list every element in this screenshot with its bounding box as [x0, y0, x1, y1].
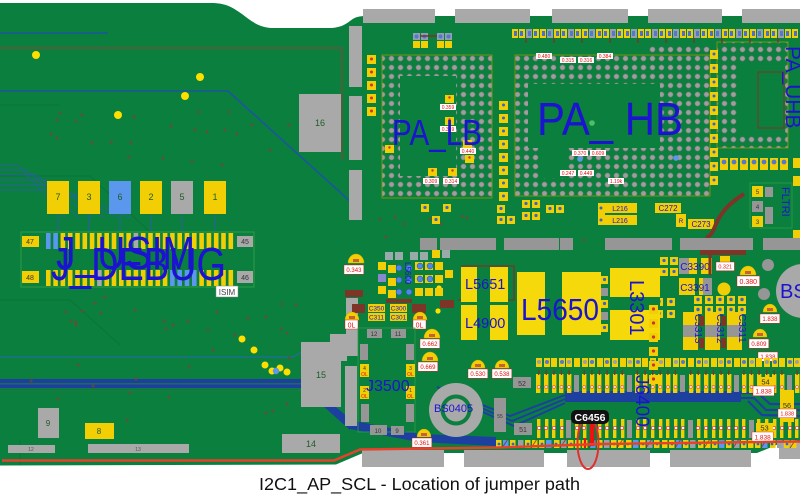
svg-text:L216: L216 [612, 206, 628, 213]
svg-text:10: 10 [375, 429, 382, 435]
svg-text:1: 1 [212, 192, 217, 202]
svg-text:0.370: 0.370 [574, 151, 587, 157]
svg-text:8: 8 [97, 427, 102, 436]
svg-text:J6400: J6400 [631, 375, 652, 427]
svg-text:FLTRI: FLTRI [779, 187, 791, 217]
svg-text:L5651: L5651 [465, 277, 505, 293]
svg-text:53: 53 [760, 424, 768, 433]
svg-text:0.384: 0.384 [599, 54, 612, 60]
svg-text:16: 16 [315, 118, 325, 128]
svg-text:C6456: C6456 [575, 412, 606, 424]
svg-text:1.838: 1.838 [754, 435, 771, 442]
svg-text:48: 48 [26, 275, 34, 282]
svg-text:0.321: 0.321 [718, 265, 732, 271]
svg-text:C3311: C3311 [736, 314, 747, 343]
svg-text:0.309: 0.309 [425, 179, 438, 185]
svg-text:PA_UHB: PA_UHB [781, 46, 800, 128]
svg-text:C300: C300 [391, 306, 407, 313]
svg-text:L5600: L5600 [403, 262, 412, 285]
svg-text:56: 56 [783, 401, 791, 410]
svg-text:12: 12 [28, 447, 34, 453]
svg-text:0.343: 0.343 [346, 268, 362, 274]
svg-text:0.609: 0.609 [592, 151, 605, 157]
svg-text:C301: C301 [391, 315, 407, 322]
svg-text:C272: C272 [658, 204, 678, 213]
svg-text:0.538: 0.538 [494, 372, 510, 378]
svg-text:0.247: 0.247 [562, 171, 575, 177]
svg-text:L3301: L3301 [625, 280, 647, 336]
svg-text:1.838: 1.838 [762, 317, 778, 323]
svg-text:C3390: C3390 [680, 262, 710, 273]
svg-text:BS: BS [780, 281, 800, 303]
svg-text:13: 13 [135, 447, 141, 453]
svg-text:PA_LB: PA_LB [392, 112, 482, 153]
svg-text:ISIM: ISIM [219, 288, 236, 297]
svg-text:1.19k: 1.19k [610, 179, 623, 185]
svg-text:11: 11 [395, 332, 402, 338]
svg-text:0.361: 0.361 [414, 441, 430, 447]
svg-text:5: 5 [179, 192, 184, 202]
svg-text:47: 47 [26, 239, 34, 246]
svg-text:0.480: 0.480 [538, 54, 551, 60]
svg-text:0.809: 0.809 [751, 342, 767, 348]
svg-text:52: 52 [518, 381, 526, 388]
svg-text:46: 46 [241, 275, 249, 282]
svg-text:C3391: C3391 [680, 283, 710, 294]
svg-text:0.315: 0.315 [562, 58, 575, 64]
svg-text:PA_ HB: PA_ HB [537, 93, 683, 145]
svg-text:54: 54 [761, 378, 769, 387]
svg-text:0.530: 0.530 [470, 372, 486, 378]
svg-text:0.316: 0.316 [580, 58, 593, 64]
svg-text:0.380: 0.380 [740, 279, 758, 286]
svg-text:L4900: L4900 [465, 316, 505, 332]
svg-text:L216: L216 [612, 218, 628, 225]
svg-text:L5650: L5650 [521, 292, 599, 327]
svg-text:12: 12 [371, 332, 378, 338]
svg-text:3: 3 [86, 192, 91, 202]
svg-text:0.662: 0.662 [422, 342, 438, 348]
svg-text:2: 2 [148, 192, 153, 202]
svg-text:R: R [679, 219, 684, 225]
svg-text:0L: 0L [416, 323, 424, 330]
svg-text:0.314: 0.314 [445, 179, 458, 185]
svg-text:45: 45 [241, 239, 249, 246]
svg-text:1.838: 1.838 [755, 389, 772, 396]
svg-text:6: 6 [117, 192, 122, 202]
svg-text:I2C1_AP_SCL - Location of jump: I2C1_AP_SCL - Location of jumper path [259, 474, 580, 495]
svg-text:1.838: 1.838 [780, 412, 794, 418]
svg-text:7: 7 [55, 192, 60, 202]
svg-text:C311: C311 [369, 315, 384, 322]
svg-text:J3500: J3500 [366, 378, 410, 395]
svg-text:15: 15 [316, 370, 326, 380]
svg-text:0.359: 0.359 [442, 105, 455, 111]
svg-text:0.669: 0.669 [420, 365, 436, 371]
svg-text:C273: C273 [691, 220, 711, 229]
svg-text:9: 9 [46, 419, 51, 428]
svg-text:0.449: 0.449 [580, 171, 593, 177]
svg-text:J_DEBUG: J_DEBUG [51, 238, 226, 290]
svg-text:55: 55 [497, 414, 503, 420]
svg-text:14: 14 [306, 439, 316, 449]
svg-text:BS0405: BS0405 [434, 403, 473, 415]
svg-text:0L: 0L [348, 323, 356, 330]
svg-text:C350: C350 [369, 306, 385, 313]
svg-text:51: 51 [519, 427, 527, 434]
